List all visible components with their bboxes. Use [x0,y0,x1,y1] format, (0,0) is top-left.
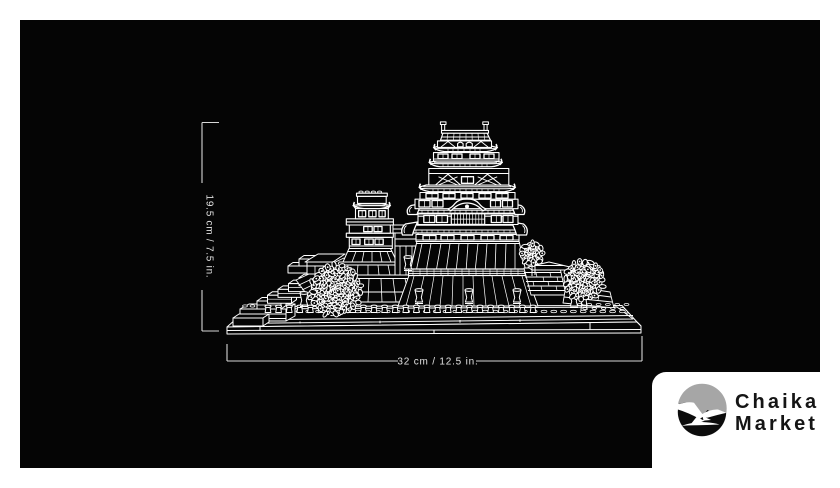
svg-text:32 cm / 12.5 in.: 32 cm / 12.5 in. [397,357,478,368]
svg-text:19.5 cm / 7.5 in.: 19.5 cm / 7.5 in. [204,195,215,279]
